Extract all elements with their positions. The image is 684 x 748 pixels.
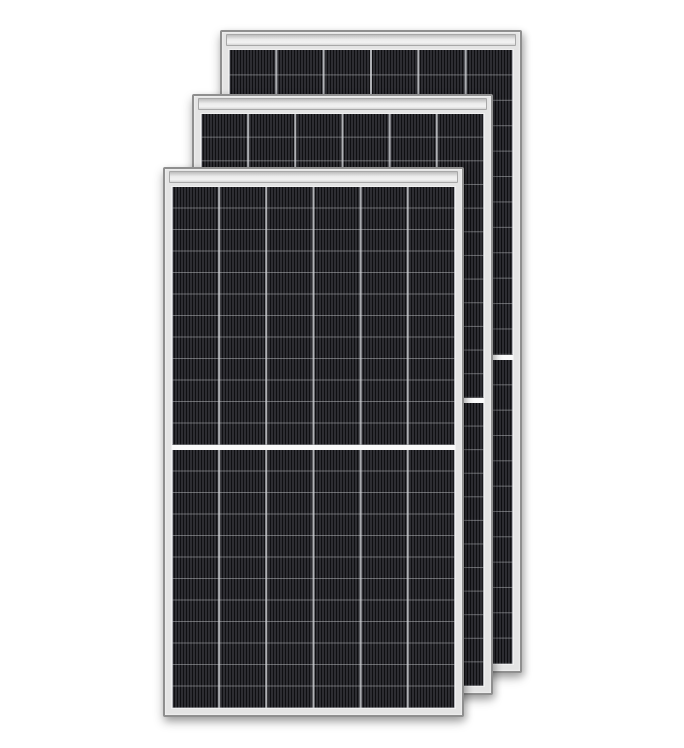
panel-frame-topbar (198, 98, 487, 110)
panel-frame-topbar (226, 34, 516, 46)
panel-half-top (172, 187, 455, 445)
panel-half-bottom (172, 450, 455, 708)
solar-panel-front (163, 167, 464, 717)
product-image-stage (0, 0, 684, 748)
panel-frame-topbar (169, 171, 458, 183)
panel-cell-area (172, 187, 455, 708)
